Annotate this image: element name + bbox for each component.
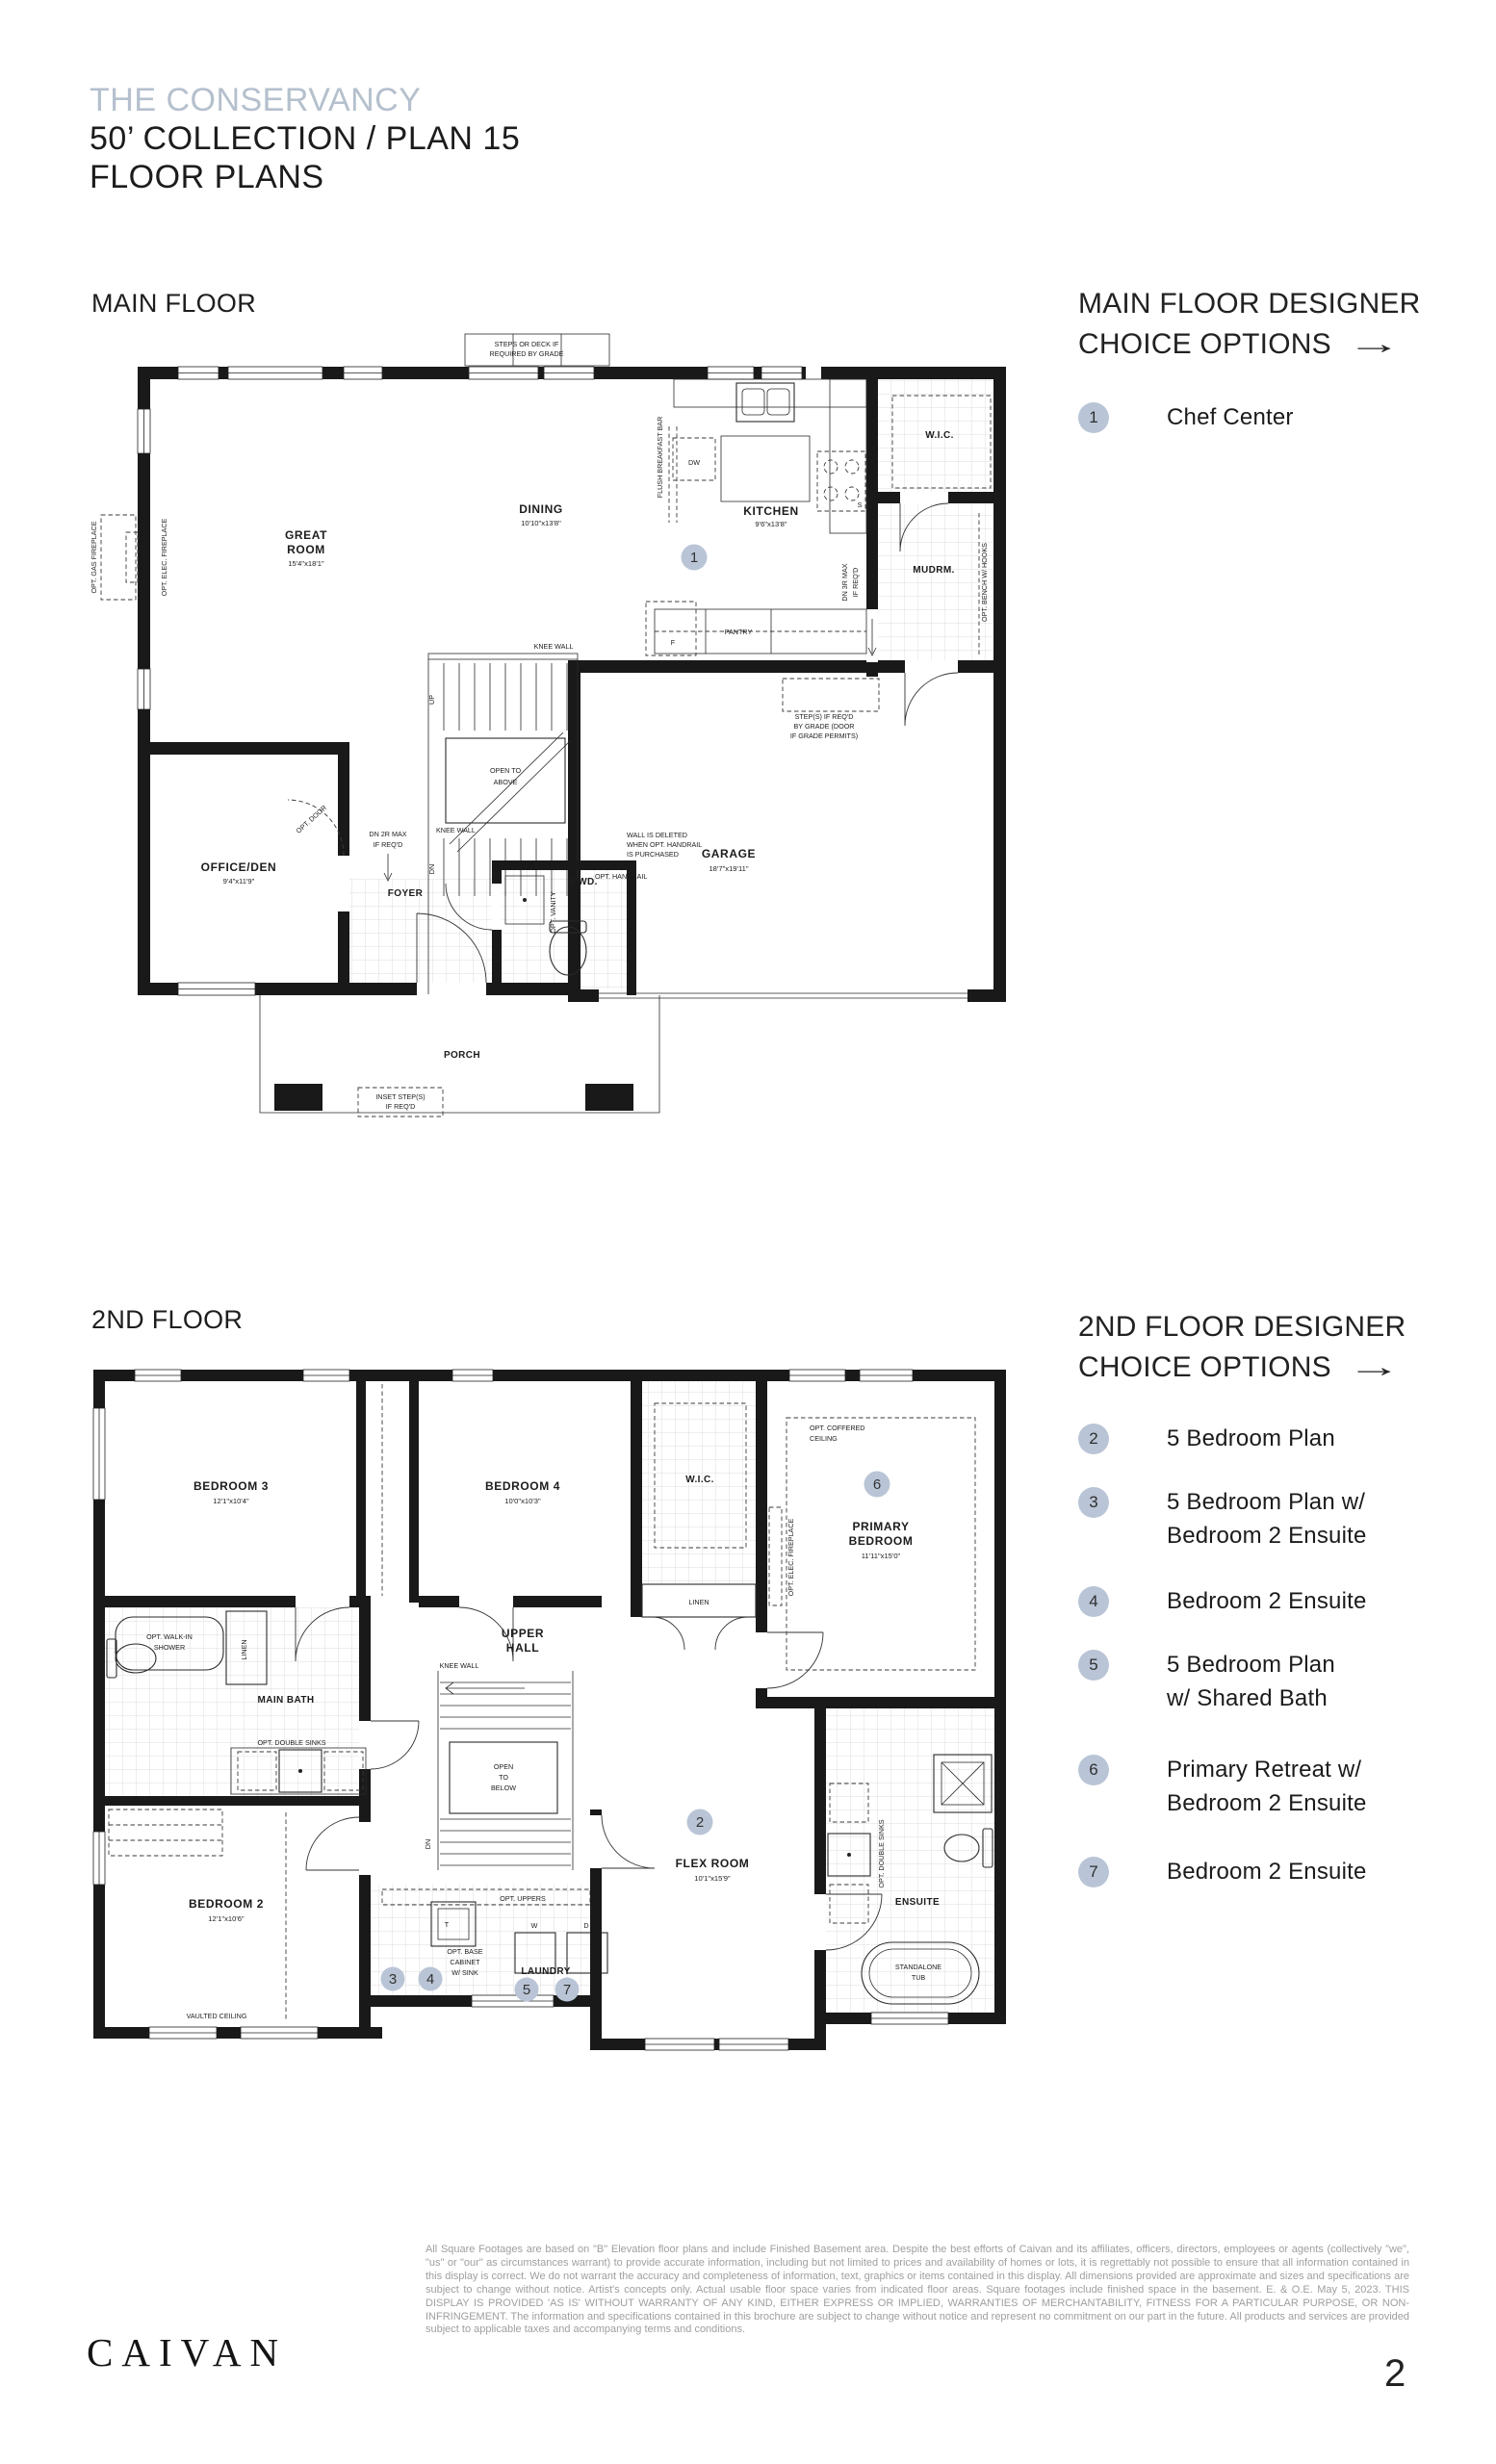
room-label-office: OFFICE/DEN [201, 860, 277, 874]
wall2-bed2-bottom [93, 2027, 382, 2039]
option-badge-4-num: 4 [426, 1971, 434, 1988]
wall-pwd-top [492, 860, 636, 870]
mf-options-heading-1: MAIN FLOOR DESIGNER [1078, 284, 1421, 324]
bedroom4-dims: 10'0"x10'3" [504, 1497, 541, 1505]
open-below-1: OPEN [494, 1762, 513, 1771]
dn2r-note-1: DN 2R MAX [369, 830, 406, 838]
mf-option-1-label: Chef Center [1167, 400, 1294, 434]
knee-wall-line [428, 654, 578, 659]
room-label-porch: PORCH [444, 1050, 480, 1061]
knee-wall2-note: KNEE WALL [440, 1661, 479, 1670]
room-label-great-room-2: ROOM [287, 543, 325, 556]
office-dims: 9'4"x11'9" [223, 877, 255, 885]
sf-option-6-line2: Bedroom 2 Ensuite [1167, 1786, 1367, 1820]
sf-option-3-badge: 3 [1078, 1487, 1109, 1518]
mf-option-1: 1 Chef Center [1078, 400, 1425, 434]
primary-door [767, 1632, 823, 1688]
legal-disclaimer: All Square Footages are based on "B" Ele… [426, 2244, 1409, 2337]
great-room-dims: 15'4"x18'1" [288, 559, 324, 568]
arrow-icon: → [1347, 324, 1402, 365]
bed2-door [306, 1817, 359, 1870]
base-cab-2: CABINET [450, 1958, 480, 1966]
sf-option-5-line1: 5 Bedroom Plan [1167, 1648, 1335, 1681]
option-badge-6-num: 6 [873, 1476, 881, 1493]
dishwasher-label: DW [688, 458, 700, 467]
up-label: UP [427, 695, 436, 705]
sf-option-5: 5 5 Bedroom Planw/ Shared Bath [1078, 1648, 1425, 1715]
page-title-block: THE CONSERVANCY 50’ COLLECTION / PLAN 15… [90, 81, 520, 196]
room-label-laundry: LAUNDRY [521, 1966, 570, 1977]
second-floor-plan: BEDROOM 3 12'1"x10'4" BEDROOM 4 10'0"x10… [82, 1365, 1020, 2096]
room-label-kitchen: KITCHEN [743, 504, 799, 518]
sf-option-2-badge: 2 [1078, 1424, 1109, 1454]
sf-option-6-line1: Primary Retreat w/ [1167, 1753, 1367, 1786]
brand-logo: CAIVAN [87, 2329, 287, 2375]
breakfast-bar-note: FLUSH BREAKFAST BAR [656, 417, 664, 499]
knee-wall-note-a: KNEE WALL [534, 642, 574, 651]
wall2-primary-bottom [767, 1697, 1006, 1708]
sf-options-heading-2: CHOICE OPTIONS [1078, 1351, 1331, 1383]
wall-deleted-2: WHEN OPT. HANDRAIL [627, 840, 702, 849]
bedroom2-dims: 12'1"x10'6" [208, 1914, 245, 1923]
elec-fireplace-note: OPT. ELEC. FIREPLACE [160, 518, 168, 596]
room-label-flex: FLEX ROOM [676, 1857, 750, 1870]
washer-label: W [531, 1921, 538, 1930]
inset-note-2: IF REQ'D [386, 1102, 416, 1111]
dining-dims: 10'10"x13'8" [521, 519, 561, 527]
powder-floor [502, 870, 627, 991]
tub-sink-label: T [445, 1920, 450, 1929]
coffered-note-1: OPT. COFFERED [810, 1424, 865, 1432]
sf-option-4: 4 Bedroom 2 Ensuite [1078, 1584, 1425, 1618]
page-subtitle: FLOOR PLANS [90, 158, 520, 196]
opt-fireplace-box [101, 515, 136, 600]
kitchen-dims: 9'6"x13'8" [755, 520, 787, 528]
room-label-upper-hall-2: HALL [506, 1641, 539, 1655]
dn2r-note-2: IF REQ'D [374, 840, 403, 849]
dn2r-arrow [384, 854, 392, 881]
sf-option-3: 3 5 Bedroom Plan w/Bedroom 2 Ensuite [1078, 1485, 1425, 1553]
dryer-label: D [583, 1921, 588, 1930]
sf-option-7-badge: 7 [1078, 1857, 1109, 1887]
opt-uppers-note: OPT. UPPERS [500, 1894, 546, 1903]
walkin-note-2: SHOWER [154, 1643, 185, 1652]
sf-option-3-line2: Bedroom 2 Ensuite [1167, 1519, 1367, 1553]
mf-options-heading-2: CHOICE OPTIONS [1078, 328, 1331, 360]
room-label-main-bath: MAIN BATH [258, 1695, 315, 1706]
vaulted-note: VAULTED CEILING [187, 2012, 247, 2020]
garage-steps [783, 679, 879, 711]
sf-option-4-badge: 4 [1078, 1586, 1109, 1617]
dn3r-note-1: DN 3R MAX [840, 563, 849, 601]
flex-dims: 10'1"x15'9" [694, 1874, 731, 1883]
dbl-sinks2-note: OPT. DOUBLE SINKS [877, 1819, 886, 1887]
coffered-note-2: CEILING [810, 1434, 838, 1443]
steps-grade-3: IF GRADE PERMITS) [790, 731, 858, 740]
option-badge-2-num: 2 [696, 1814, 704, 1831]
room-label-primary-2: BEDROOM [849, 1534, 914, 1548]
tub-note-2: TUB [912, 1973, 926, 1982]
community-name: THE CONSERVANCY [90, 81, 520, 119]
wall-right [993, 379, 1006, 1002]
steps-grade-2: BY GRADE (DOOR [794, 722, 855, 731]
brochure-page: THE CONSERVANCY 50’ COLLECTION / PLAN 15… [0, 0, 1496, 2464]
arrow-icon-2: → [1347, 1347, 1402, 1388]
room-label-great-room: GREAT [285, 528, 327, 542]
bed2-closet [109, 1809, 222, 1856]
sf-option-5-badge: 5 [1078, 1650, 1109, 1681]
main-floor-options-heading: MAIN FLOOR DESIGNER CHOICE OPTIONS→ [1078, 284, 1421, 365]
primary-dims: 11'11"x15'0" [862, 1552, 901, 1560]
fireplace2-box [769, 1507, 782, 1605]
sf-option-2-line1: 5 Bedroom Plan [1167, 1422, 1335, 1455]
room-label-dining: DINING [519, 502, 563, 516]
main-bath-floor [105, 1607, 359, 1796]
room-label-mudroom: MUDRM. [913, 565, 955, 576]
steps-note: STEPS OR DECK IF [495, 340, 559, 348]
wall2-bath-bottom [93, 1796, 371, 1806]
open-above-1: OPEN TO [490, 766, 521, 775]
mf-option-1-badge: 1 [1078, 402, 1109, 433]
porch-post-right [585, 1084, 633, 1111]
linen-doors [652, 1617, 748, 1650]
room-label-ensuite: ENSUITE [895, 1897, 940, 1908]
room-label-bedroom2: BEDROOM 2 [189, 1897, 264, 1911]
opt-handrail-note: OPT. HANDRAIL [595, 872, 647, 881]
room-label-wic2: W.I.C. [685, 1475, 714, 1485]
sf-option-7: 7 Bedroom 2 Ensuite [1078, 1855, 1425, 1888]
dn2-label: DN [424, 1839, 432, 1849]
pantry-label: PANTRY [725, 628, 753, 636]
wall-office-top [138, 742, 349, 755]
option-badge-7-num: 7 [563, 1982, 571, 1998]
mudroom-garage-door [905, 673, 958, 726]
room-label-foyer: FOYER [388, 888, 424, 899]
dbl-sinks-note: OPT. DOUBLE SINKS [257, 1738, 325, 1747]
inset-note-1: INSET STEP(S) [375, 1092, 425, 1101]
main-bath-door [371, 1721, 419, 1769]
flex-door [602, 1815, 655, 1868]
option-badge-3-num: 3 [389, 1971, 397, 1988]
room-label-bedroom3: BEDROOM 3 [193, 1479, 269, 1493]
garage-dims: 18'7"x19'11" [709, 864, 748, 873]
linen2-label: LINEN [240, 1639, 248, 1659]
base-cab-3: W/ SINK [451, 1968, 478, 1977]
main-floor-plan: STEPS OR DECK IF REQUIRED BY GRADE [82, 205, 1020, 1134]
open-below-3: BELOW [491, 1784, 516, 1792]
room-label-wic: W.I.C. [925, 430, 954, 441]
sf-option-3-line1: 5 Bedroom Plan w/ [1167, 1485, 1367, 1519]
linen-label: LINEN [688, 1598, 709, 1606]
fridge-label: F [671, 638, 676, 647]
room-label-primary: PRIMARY [852, 1520, 909, 1533]
walkin-note-1: OPT. WALK-IN [146, 1632, 193, 1641]
bedroom3-dims: 12'1"x10'4" [213, 1497, 249, 1505]
open-below-2: TO [499, 1773, 508, 1782]
stove-label: S [858, 500, 863, 509]
sf-option-7-line1: Bedroom 2 Ensuite [1167, 1855, 1367, 1888]
page-number: 2 [1384, 2352, 1406, 2396]
sf-option-6-badge: 6 [1078, 1755, 1109, 1785]
room-label-garage: GARAGE [702, 847, 756, 860]
wall-deleted-1: WALL IS DELETED [627, 831, 687, 839]
room-label-bedroom4: BEDROOM 4 [485, 1479, 560, 1493]
porch-post-left [274, 1084, 322, 1111]
sf-option-5-line2: w/ Shared Bath [1167, 1681, 1335, 1715]
wall-deleted-3: IS PURCHASED [627, 850, 679, 859]
tub-note-1: STANDALONE [895, 1963, 941, 1971]
steps-note-2: REQUIRED BY GRADE [490, 349, 564, 358]
base-cab-1: OPT. BASE [447, 1947, 482, 1956]
collection-title: 50’ COLLECTION / PLAN 15 [90, 119, 520, 158]
gas-fireplace-note: OPT. GAS FIREPLACE [90, 521, 98, 593]
open-above-2: ABOVE [494, 778, 518, 786]
mf-option-1-line1: Chef Center [1167, 400, 1294, 434]
sf-option-4-line1: Bedroom 2 Ensuite [1167, 1584, 1367, 1618]
second-floor-options-heading: 2ND FLOOR DESIGNER CHOICE OPTIONS→ [1078, 1307, 1406, 1388]
sf-option-6: 6 Primary Retreat w/Bedroom 2 Ensuite [1078, 1753, 1425, 1820]
wall-pwd-right [627, 870, 636, 995]
option-badge-1-num: 1 [690, 550, 698, 566]
dn3r-note-2: IF REQ'D [851, 568, 860, 598]
knee-wall-note-b: KNEE WALL [436, 826, 476, 834]
second-floor-heading: 2ND FLOOR [91, 1305, 243, 1335]
sf-option-2: 2 5 Bedroom Plan [1078, 1422, 1425, 1455]
wall-garage-left [568, 673, 580, 989]
opt-door-note: OPT. DOOR [295, 804, 328, 835]
sf-options-heading-1: 2ND FLOOR DESIGNER [1078, 1307, 1406, 1347]
elec-fireplace2-note: OPT. ELEC. FIREPLACE [787, 1518, 795, 1596]
dn-label: DN [427, 864, 436, 874]
room-label-pwd: PWD. [571, 877, 598, 887]
steps-grade-1: STEP(S) IF REQ'D [795, 712, 854, 721]
room-label-upper-hall: UPPER [502, 1627, 544, 1640]
mudroom-floor [878, 503, 993, 660]
option-badge-5-num: 5 [523, 1982, 530, 1998]
bench-note: OPT. BENCH W/ HOOKS [980, 543, 989, 622]
